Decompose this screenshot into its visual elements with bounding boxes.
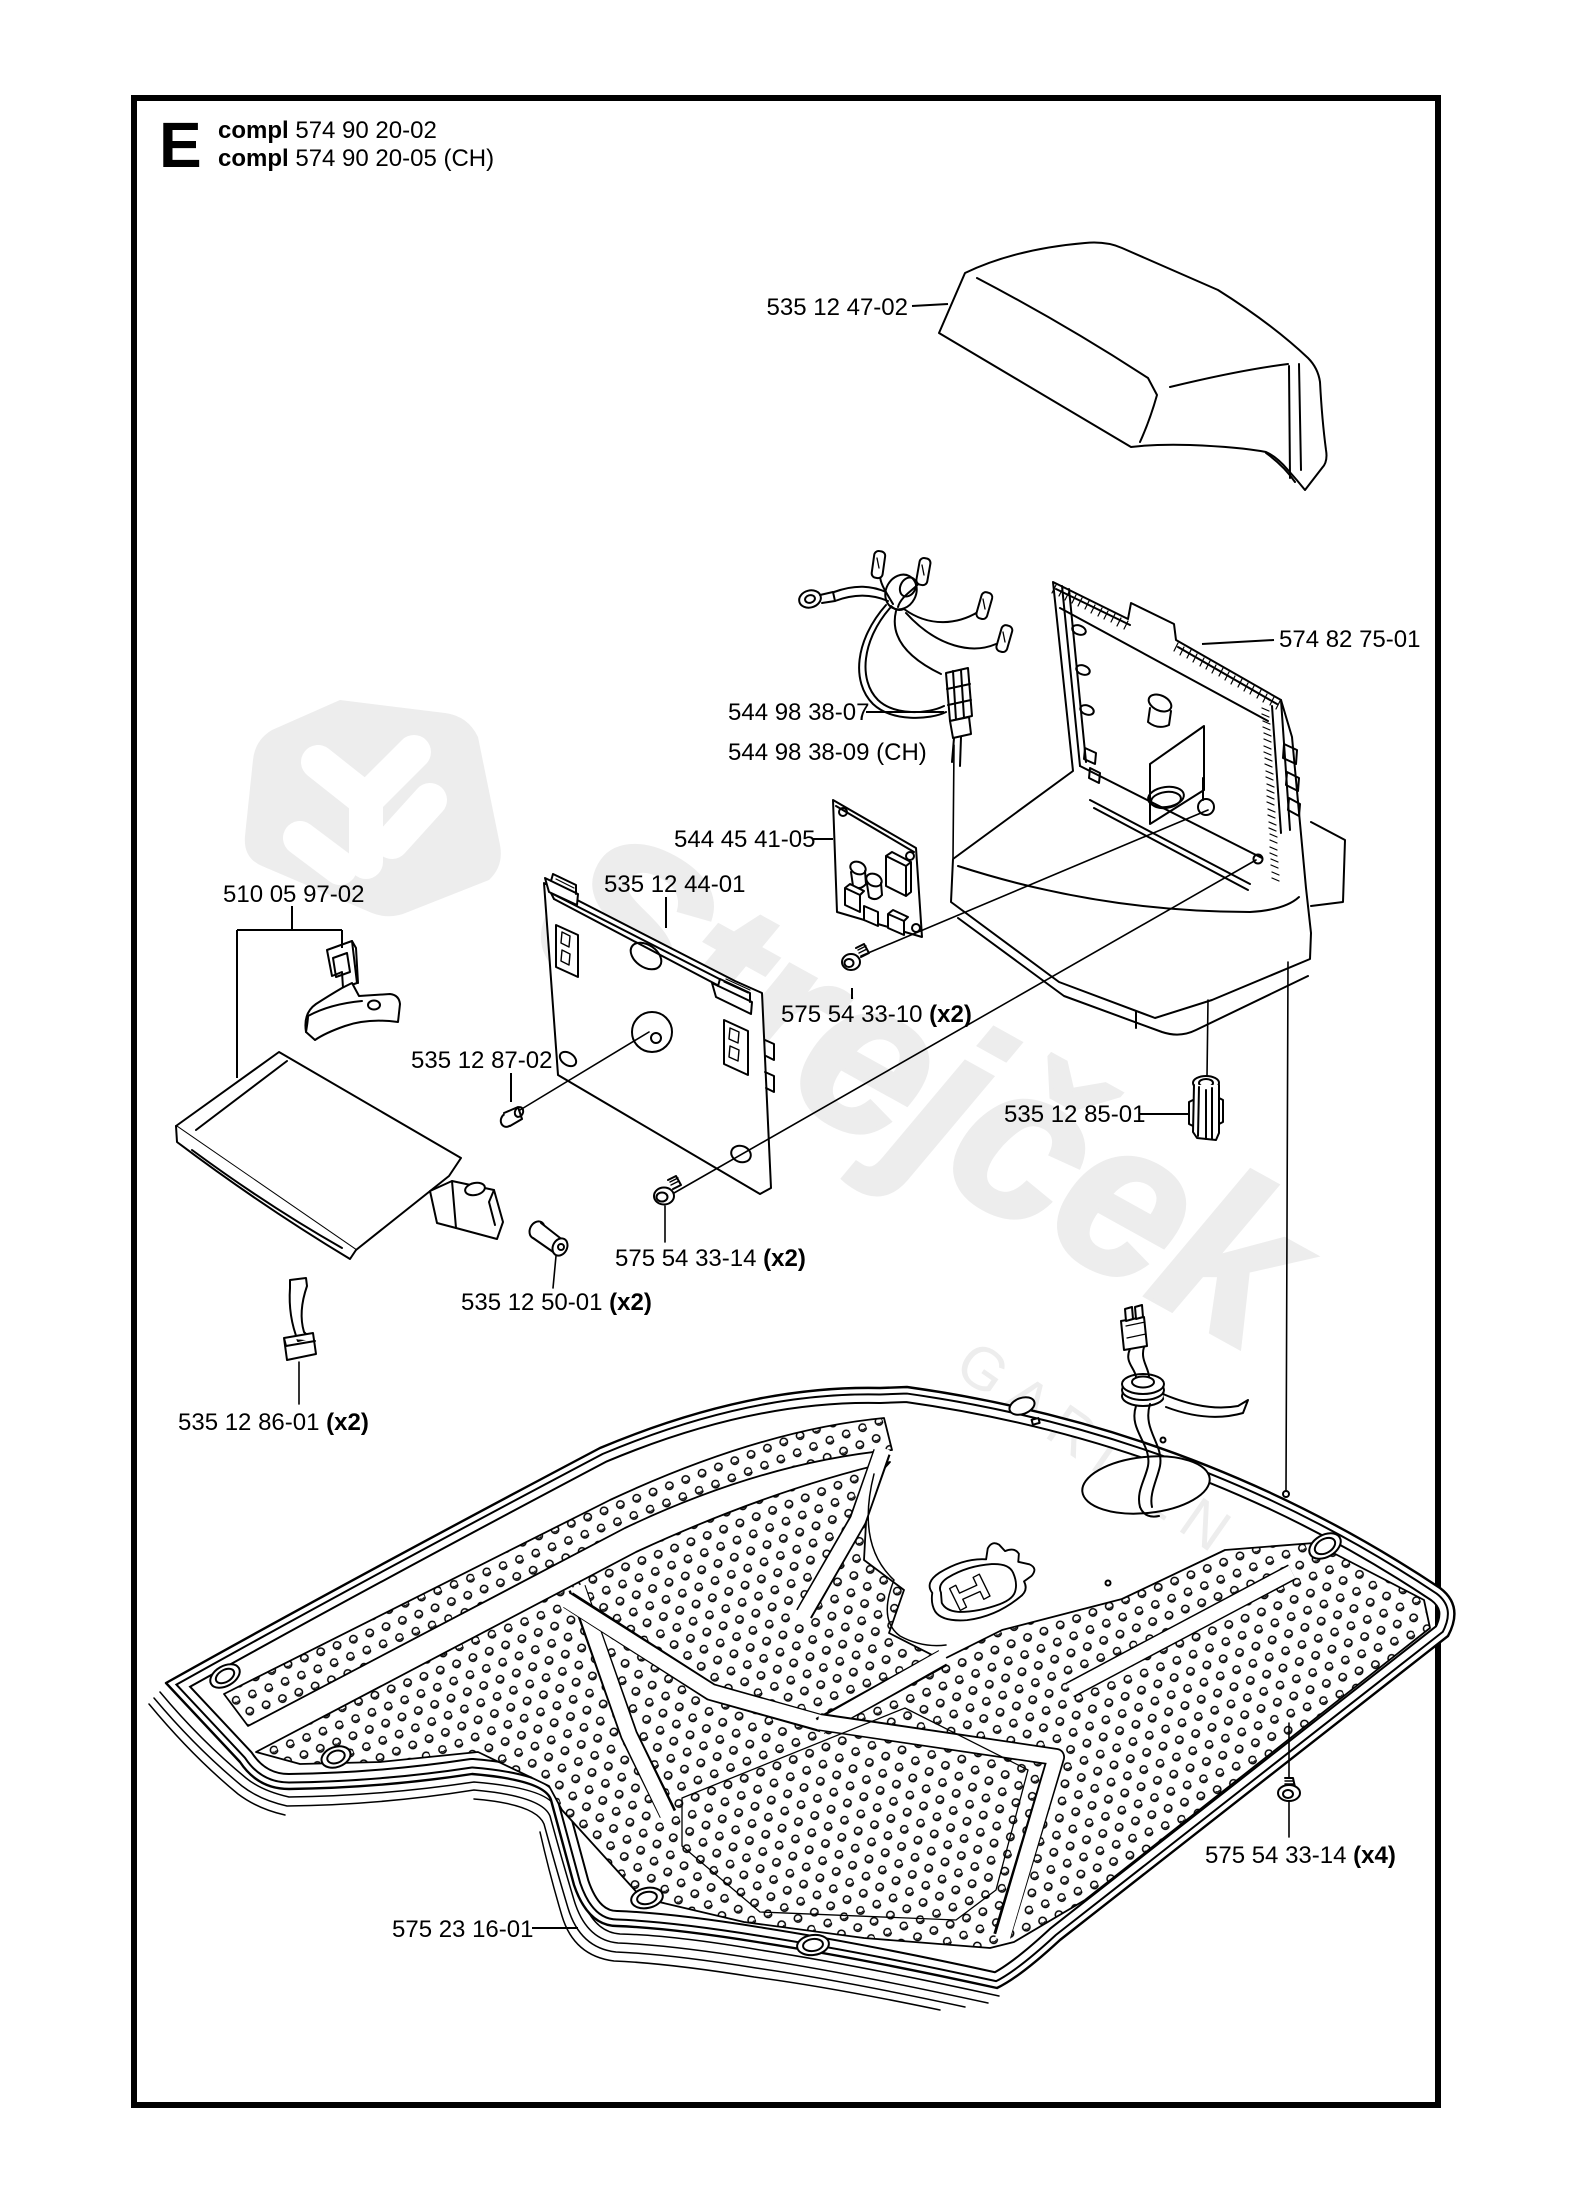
- svg-text:535 12 44-01: 535 12 44-01: [604, 871, 745, 898]
- svg-text:575 23 16-01: 575 23 16-01: [392, 1916, 533, 1943]
- svg-text:510 05 97-02: 510 05 97-02: [223, 881, 364, 908]
- svg-text:544 45 41-05: 544 45 41-05: [674, 826, 815, 853]
- svg-text:575 54 33-14 (x4): 575 54 33-14 (x4): [1205, 1842, 1396, 1869]
- svg-text:535 12 47-02: 535 12 47-02: [767, 294, 908, 321]
- svg-text:compl 574 90 20-02: compl 574 90 20-02: [218, 117, 437, 144]
- svg-text:544 98 38-07: 544 98 38-07: [728, 699, 869, 726]
- svg-text:535 12 87-02: 535 12 87-02: [411, 1047, 552, 1074]
- svg-text:E: E: [159, 109, 202, 181]
- svg-text:compl 574 90 20-05 (CH): compl 574 90 20-05 (CH): [218, 145, 494, 172]
- svg-text:575 54 33-10 (x2): 575 54 33-10 (x2): [781, 1001, 972, 1028]
- svg-text:574 82 75-01: 574 82 75-01: [1279, 626, 1420, 653]
- svg-text:535 12 50-01 (x2): 535 12 50-01 (x2): [461, 1289, 652, 1316]
- svg-text:535 12 85-01: 535 12 85-01: [1004, 1101, 1145, 1128]
- svg-text:535 12 86-01 (x2): 535 12 86-01 (x2): [178, 1409, 369, 1436]
- svg-text:575 54 33-14 (x2): 575 54 33-14 (x2): [615, 1245, 806, 1272]
- svg-text:544 98 38-09 (CH): 544 98 38-09 (CH): [728, 739, 927, 766]
